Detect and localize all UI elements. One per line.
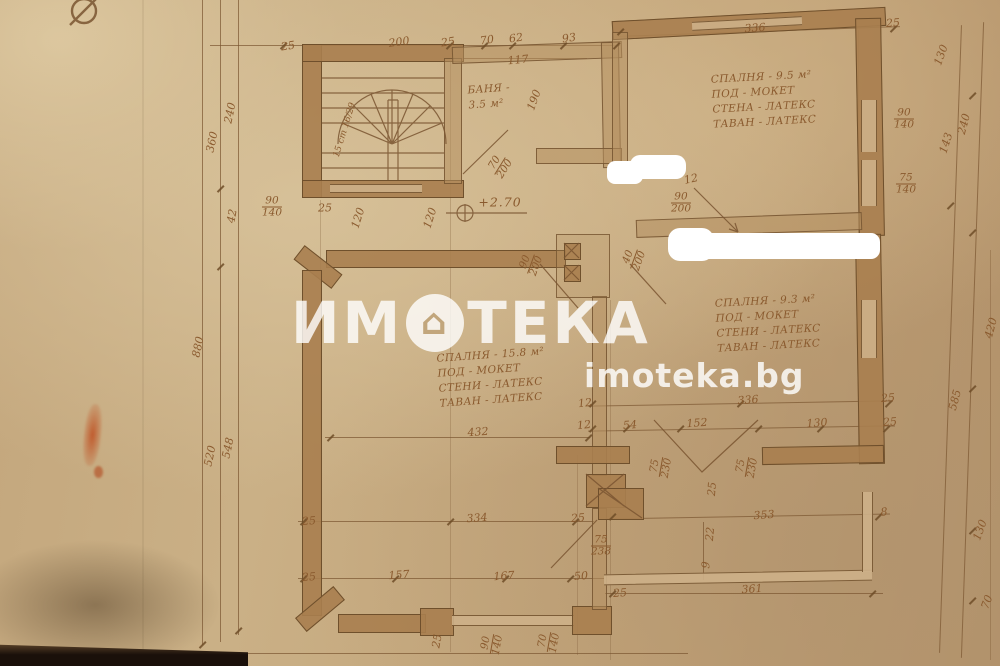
room-label-line: БАНЯ - — [467, 81, 511, 99]
floor-plan-scan: 2520025706293117336252403604288052054890… — [0, 0, 1000, 666]
whiteout-patch — [700, 233, 880, 259]
whiteout-patch — [630, 155, 686, 179]
watermark-text-left: ИМ — [291, 289, 403, 357]
watermark-logo: ИМ ⌂ ТЕКА — [291, 289, 651, 357]
room-label-bath: БАНЯ -3.5 м² — [467, 81, 512, 114]
watermark-url: imoteka.bg — [584, 356, 805, 395]
home-icon: ⌂ — [406, 294, 464, 352]
watermark-text-right: ТЕКА — [467, 289, 650, 357]
room-label-line: 3.5 м² — [468, 96, 512, 114]
room-label-bedroom-9-5: СПАЛНЯ - 9.5 м²ПОД - МОКЕТСТЕНА - ЛАТЕКС… — [711, 67, 817, 132]
red-ink-dot — [94, 466, 103, 478]
room-label-bedroom-9-3: СПАЛНЯ - 9.3 м²ПОД - МОКЕТСТЕНИ - ЛАТЕКС… — [715, 291, 822, 356]
